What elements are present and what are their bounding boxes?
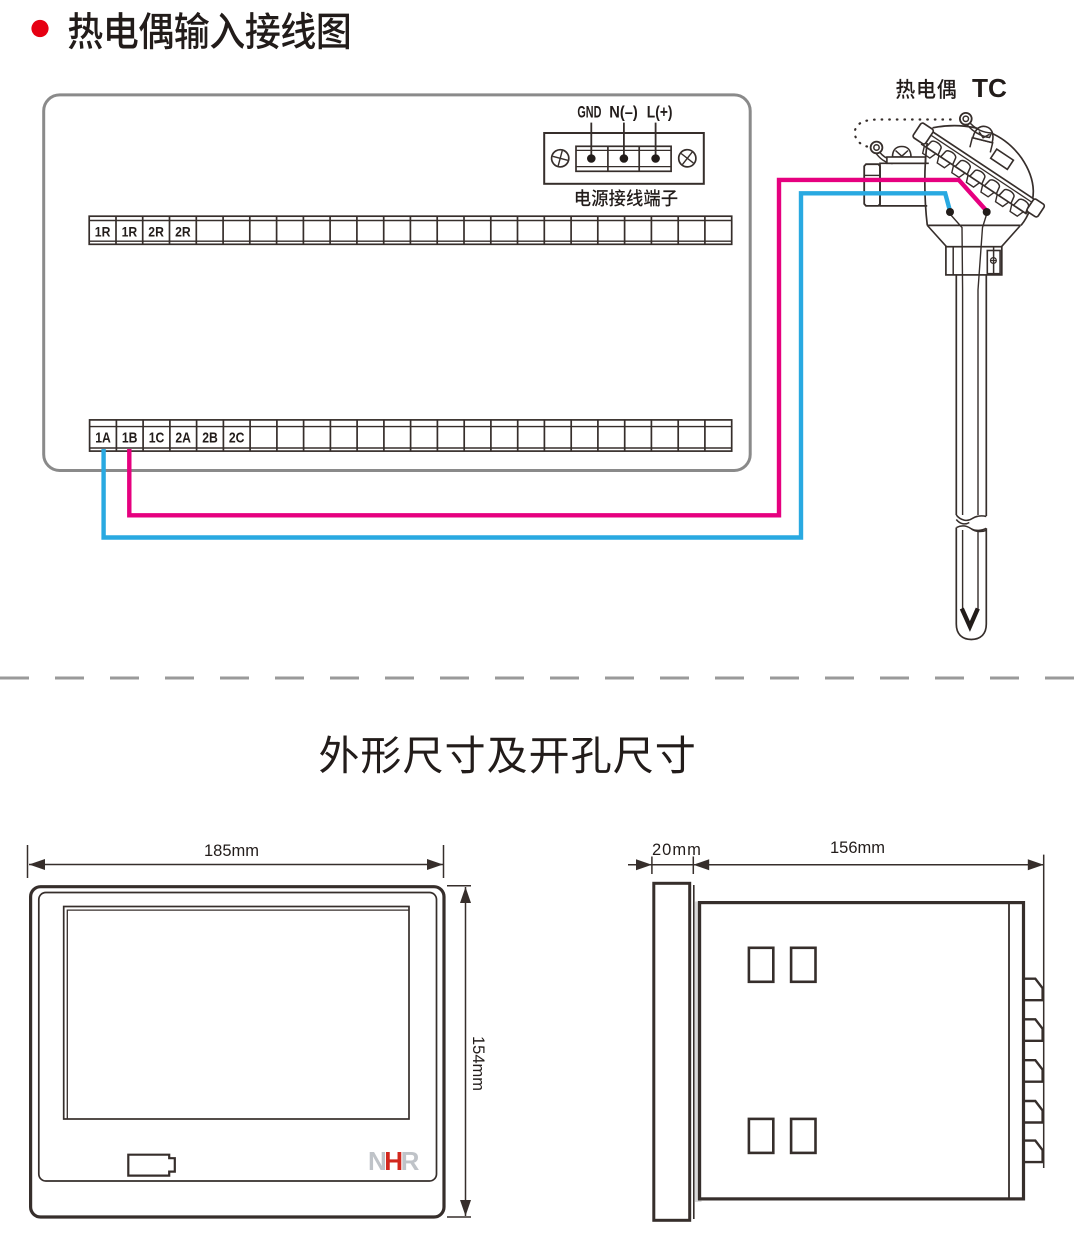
svg-text:154mm: 154mm xyxy=(469,1036,487,1091)
svg-text:1C: 1C xyxy=(149,430,165,447)
svg-text:N(–): N(–) xyxy=(609,103,638,122)
svg-text:NHR: NHR xyxy=(368,1146,420,1176)
svg-text:GND: GND xyxy=(577,103,601,122)
svg-text:2A: 2A xyxy=(175,430,191,447)
svg-text:2R: 2R xyxy=(175,224,191,240)
svg-text:1R: 1R xyxy=(95,224,111,240)
svg-text:156mm: 156mm xyxy=(830,839,885,857)
svg-text:L(+): L(+) xyxy=(647,103,673,122)
svg-text:20mm: 20mm xyxy=(652,841,702,859)
svg-text:2B: 2B xyxy=(202,430,218,447)
svg-text:1B: 1B xyxy=(122,430,138,447)
svg-text:2R: 2R xyxy=(148,224,164,240)
svg-text:1A: 1A xyxy=(95,430,111,447)
svg-text:185mm: 185mm xyxy=(204,842,259,860)
svg-text:TC: TC xyxy=(972,75,1007,103)
svg-text:1R: 1R xyxy=(122,224,138,240)
svg-text:2C: 2C xyxy=(229,430,245,447)
